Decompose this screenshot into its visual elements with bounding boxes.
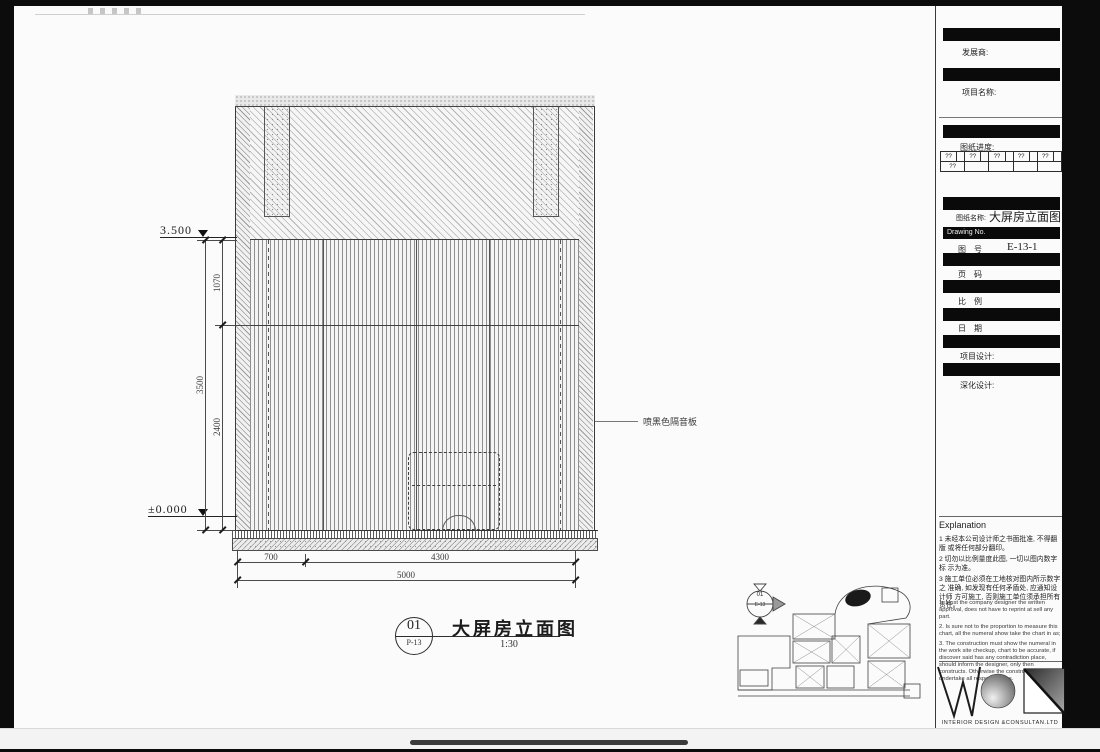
dim-total-width: 5000: [376, 570, 436, 580]
redacted-progress-bar: [943, 125, 1060, 138]
key-plan-marker-sheet: E-13: [746, 602, 774, 608]
level-bottom-label: ±0.000: [148, 502, 188, 517]
view-scale: 1:30: [487, 639, 531, 650]
page-label: 页 码: [958, 269, 982, 280]
divider: [939, 117, 1062, 118]
developer-label: 发展商:: [962, 47, 988, 58]
panel-joint: [323, 240, 324, 530]
explanation-title: Explanation: [939, 520, 1063, 530]
divider: [939, 661, 1062, 662]
dim-line-widths: [237, 562, 575, 563]
level-bottom-marker-icon: [198, 509, 208, 516]
project-design-label: 项目设计:: [960, 351, 994, 362]
note-en: 2. Is sure not to the proportion to meas…: [939, 624, 1063, 638]
scale-label: 比 例: [958, 296, 982, 307]
drawing-sheet: 3.500 ±0.000 3500 1070 2400 700 4300 500: [14, 6, 1062, 728]
dim-ext-line: [237, 550, 238, 588]
key-plan-marker-number: 01: [746, 592, 774, 598]
drawing-name-label: 图纸名称:: [956, 213, 986, 223]
above-ceiling-hatch: [250, 107, 579, 240]
right-wall-section-hatch: [579, 107, 593, 530]
dim-ext-line: [575, 550, 576, 588]
logo-caption: INTERIOR DESIGN &CONSULTAN.LTD: [934, 720, 1066, 726]
drawing-name: 大屏房立面图: [989, 208, 1061, 225]
redacted-project-design-bar: [943, 335, 1060, 348]
note-en: 1. Must the company designer the written…: [939, 600, 1063, 621]
redacted-developer-bar: [943, 28, 1060, 41]
furniture-edge-line: [422, 452, 423, 530]
material-label: 喷黑色隔音板: [643, 415, 697, 428]
dim-line-total-height: [205, 240, 206, 530]
redacted-scale-bar: [943, 280, 1060, 293]
revision-table: ?? ?? ?? ?? ?? ??: [940, 151, 1062, 172]
detail-design-label: 深化设计:: [960, 380, 994, 391]
dim-upper-height: 1070: [212, 266, 222, 300]
panel-joint-dashed: [268, 240, 269, 530]
dim-total-height: 3500: [195, 368, 205, 402]
left-wall-section-hatch: [236, 107, 250, 530]
ceiling-slab-hatch: [235, 95, 595, 107]
divider: [939, 516, 1062, 517]
project-name-label: 项目名称:: [962, 87, 996, 98]
redacted-detail-design-bar: [943, 363, 1060, 376]
dim-left-width: 700: [253, 552, 289, 562]
redacted-project-bar: [943, 68, 1060, 81]
drawing-no-header: Drawing No.: [947, 229, 986, 236]
drawing-no-value: E-13-1: [1007, 241, 1038, 253]
furniture-dashed-midline: [412, 485, 496, 486]
key-plan-sketch: [730, 578, 925, 712]
right-column-drop: [533, 107, 559, 217]
won-logo-icon: [934, 664, 1066, 720]
date-label: 日 期: [958, 323, 982, 334]
note-cn: 2 切勿以比例量度此图, 一切以图内数字标 示为准。: [939, 556, 1063, 573]
dim-right-width: 4300: [410, 552, 470, 562]
view-name: 大屏房立面图: [452, 615, 578, 641]
level-bottom-line: [148, 516, 237, 517]
dim-lower-height: 2400: [212, 410, 222, 444]
redacted-date-bar: [943, 308, 1060, 321]
floor-finish-hatch: [232, 530, 598, 538]
panel-joint-dashed: [560, 240, 561, 530]
drawing-no-header-bar: Drawing No.: [943, 227, 1060, 239]
leader-line: [595, 421, 638, 422]
device-screen: 3.500 ±0.000 3500 1070 2400 700 4300 500: [0, 0, 1100, 752]
panel-horizontal-joint: [250, 325, 579, 326]
note-cn: 1 未经本公司设计师之书面批准, 不得翻版 或将任何部分翻印。: [939, 536, 1063, 553]
sheet-top-border: [35, 14, 585, 15]
home-indicator[interactable]: [410, 740, 688, 745]
dim-line-segments: [222, 240, 223, 530]
left-column-drop: [264, 107, 290, 217]
device-bottom-bar: [0, 728, 1100, 749]
redacted-page-bar: [943, 253, 1060, 266]
level-top-label: 3.500: [160, 223, 192, 238]
view-number: 01: [395, 618, 433, 634]
view-sheet-ref: P-13: [395, 638, 433, 647]
dim-line-total-width: [237, 580, 575, 581]
title-block-border: [935, 6, 936, 728]
floor-slab-hatch: [232, 538, 598, 551]
